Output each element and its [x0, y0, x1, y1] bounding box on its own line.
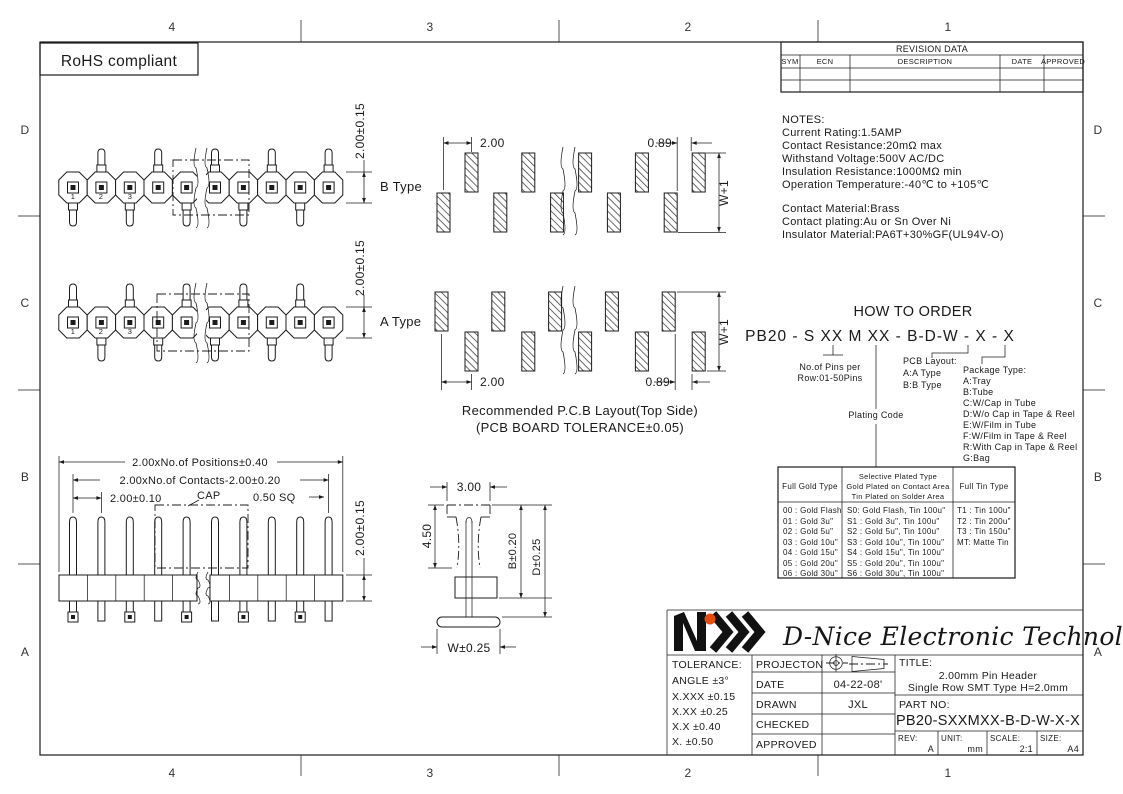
pin-number: 3 — [128, 192, 132, 201]
front-dim-contacts: 2.00xNo.of Contacts-2.00±0.20 — [120, 475, 281, 487]
note-contact-plating: Contact plating:Au or Sn Over Ni — [782, 216, 951, 228]
selective-row: S1 : Gold 3u", Tin 100u" — [847, 517, 940, 526]
row-label-projection: PROJECTON — [756, 659, 823, 671]
grid-label-bottom-4: 4 — [169, 766, 176, 780]
grid-label-left-c: C — [21, 296, 30, 310]
grid-label-left-b: B — [21, 470, 29, 484]
revision-table-title: REVISION DATA — [896, 44, 968, 54]
unit-value: mm — [967, 744, 983, 754]
full-gold-row: 01 : Gold 3u" — [783, 517, 833, 526]
pcb-layout-b: B:B Type — [903, 380, 942, 390]
title-line-1: 2.00mm Pin Header — [939, 670, 1038, 682]
full-gold-row: 04 : Gold 15u" — [783, 548, 838, 557]
tolerance-title: TOLERANCE: — [672, 659, 742, 671]
full-tin-row: T1 : Tin 100u" — [957, 506, 1011, 515]
revision-col-description: DESCRIPTION — [898, 57, 953, 66]
order-part-code: PB20 - S XX M XX - B-D-W - X - X — [745, 328, 1015, 345]
front-dim-positions: 2.00xNo.of Positions±0.40 — [132, 457, 268, 469]
plating-header-selective-1: Selective Plated Type — [859, 472, 937, 481]
tolerance-xx: X.XX ±0.25 — [672, 706, 728, 718]
selective-row: S6 : Gold 30u", Tin 100u" — [847, 569, 944, 578]
pins-per-row-note-2: Row:01-50Pins — [798, 373, 863, 383]
row-label-checked: CHECKED — [756, 719, 810, 731]
tolerance-angle: ANGLE ±3° — [672, 675, 729, 687]
part-no-label: PART NO: — [899, 699, 950, 711]
pins-per-row-note-1: No.of Pins per — [799, 362, 860, 372]
text-layer: 4 3 2 1 4 3 2 1 D C B A D C B A RoHS com… — [21, 20, 1123, 780]
full-tin-row: MT: Matte Tin — [957, 538, 1009, 547]
note-insulation-resistance: Insulation Resistance:1000MΩ min — [782, 166, 962, 178]
pin-number: 2 — [99, 192, 103, 201]
package-type-cap-reel: R:With Cap in Tape & Reel — [963, 442, 1077, 452]
scale-value: 2:1 — [1020, 744, 1033, 754]
grid-label-top-3: 3 — [427, 20, 434, 34]
full-gold-row: 05 : Gold 20u" — [783, 559, 838, 568]
row-label-date: DATE — [756, 679, 784, 691]
company-name: D-Nice Electronic Technology — [782, 622, 1123, 651]
revision-col-date: DATE — [1012, 57, 1033, 66]
datasheet-page: 4 3 2 1 4 3 2 1 D C B A D C B A RoHS com… — [0, 0, 1123, 794]
package-type-cap-tube: C:W/Cap in Tube — [963, 398, 1036, 408]
dim-edge-b: 0.89 — [647, 136, 672, 150]
pin-number: 1 — [71, 192, 75, 201]
grid-label-top-2: 2 — [685, 20, 692, 34]
unit-label: UNIT: — [941, 734, 963, 743]
scale-label: SCALE: — [990, 734, 1020, 743]
note-contact-material: Contact Material:Brass — [782, 203, 900, 215]
full-gold-row: 00 : Gold Flash — [783, 506, 842, 515]
pin-number: 2 — [99, 327, 103, 336]
revision-col-ecn: ECN — [817, 57, 834, 66]
package-type-wo-cap-reel: D:W/o Cap in Tape & Reel — [963, 409, 1075, 419]
line-art — [18, 20, 1105, 776]
dim-edge-a: 0.89 — [645, 375, 670, 389]
full-gold-row: 02 : Gold 5u" — [783, 527, 833, 536]
pin-number: 3 — [128, 327, 132, 336]
grid-label-bottom-1: 1 — [945, 766, 952, 780]
front-dim-height: 2.00±0.15 — [353, 500, 367, 556]
title-label: TITLE: — [899, 657, 932, 669]
package-type-film-tube: E:W/Film in Tube — [963, 420, 1036, 430]
pcb-layout-note-2: (PCB BOARD TOLERANCE±0.05) — [476, 420, 684, 435]
full-tin-row: T3 : Tin 150u" — [957, 527, 1011, 536]
side-dim-width: 3.00 — [457, 480, 482, 494]
dim-w-plus-1-a: W+1 — [717, 319, 731, 345]
grid-label-left-d: D — [21, 123, 30, 137]
full-gold-row: 03 : Gold 10u" — [783, 538, 838, 547]
selective-row: S5 : Gold 20u", Tin 100u" — [847, 559, 944, 568]
rev-label: REV: — [898, 734, 918, 743]
grid-label-left-a: A — [21, 645, 29, 659]
dim-row-height-a: 2.00±0.15 — [353, 240, 367, 296]
plating-header-selective-2: Gold Plated on Contact Area — [846, 482, 950, 491]
selective-row: S0: Gold Flash, Tin 100u" — [847, 506, 945, 515]
tolerance-x: X.X ±0.40 — [672, 721, 721, 733]
selective-row: S4 : Gold 15u", Tin 100u" — [847, 548, 944, 557]
pcb-layout-label: PCB Layout: — [903, 356, 957, 366]
plating-header-full-tin: Full Tin Type — [959, 482, 1008, 491]
package-type-bag: G:Bag — [963, 453, 990, 463]
dim-w-plus-1-b: W+1 — [717, 180, 731, 206]
front-dim-pitch: 2.00±0.10 — [110, 493, 162, 505]
package-type-tray: A:Tray — [963, 376, 991, 386]
row-label-drawn: DRAWN — [756, 699, 797, 711]
revision-col-sym: SYM — [781, 57, 798, 66]
b-type-label: B Type — [380, 179, 422, 194]
plating-header-selective-3: Tin Plated on Solder Area — [852, 492, 945, 501]
side-dim-b: B±0.20 — [507, 533, 519, 570]
rev-value: A — [928, 744, 934, 754]
dim-pitch-b: 2.00 — [480, 136, 505, 150]
row-label-approved: APPROVED — [756, 739, 817, 751]
side-dim-height: 4.50 — [420, 524, 434, 549]
note-operation-temperature: Operation Temperature:-40℃ to +105℃ — [782, 179, 989, 191]
grid-label-right-b: B — [1094, 470, 1102, 484]
selective-row: S3 : Gold 10u", Tin 100u" — [847, 538, 944, 547]
pcb-layout-a: A:A Type — [903, 368, 941, 378]
side-dim-d: D±0.25 — [531, 538, 543, 575]
plating-header-full-gold: Full Gold Type — [782, 482, 838, 491]
package-type-label: Package Type: — [963, 365, 1026, 375]
grid-label-top-1: 1 — [945, 20, 952, 34]
title-line-2: Single Row SMT Type H=2.0mm — [908, 682, 1068, 694]
rohs-badge: RoHS compliant — [61, 53, 178, 70]
dim-row-height-b: 2.00±0.15 — [353, 103, 367, 159]
note-withstand-voltage: Withstand Voltage:500V AC/DC — [782, 153, 945, 165]
grid-label-right-c: C — [1094, 296, 1103, 310]
a-type-label: A Type — [380, 314, 421, 329]
grid-label-top-4: 4 — [169, 20, 176, 34]
grid-label-bottom-3: 3 — [427, 766, 434, 780]
drawn-value: JXL — [848, 699, 868, 711]
front-cap-label: CAP — [197, 490, 221, 502]
pcb-layout-note-1: Recommended P.C.B Layout(Top Side) — [462, 403, 698, 418]
package-type-film-reel: F:W/Film in Tape & Reel — [963, 431, 1067, 441]
grid-label-bottom-2: 2 — [685, 766, 692, 780]
how-to-order-title: HOW TO ORDER — [853, 304, 972, 320]
tolerance-whole: X. ±0.50 — [672, 736, 713, 748]
part-no-value: PB20-SXXMXX-B-D-W-X-X — [896, 713, 1080, 729]
date-value: 04-22-08' — [834, 679, 883, 691]
note-current-rating: Current Rating:1.5AMP — [782, 127, 902, 139]
full-tin-row: T2 : Tin 200u" — [957, 517, 1011, 526]
plating-code-label: Plating Code — [848, 410, 903, 420]
size-value: A4 — [1067, 744, 1079, 754]
dim-pitch-a: 2.00 — [480, 375, 505, 389]
package-type-tube: B:Tube — [963, 387, 993, 397]
selective-row: S2 : Gold 5u", Tin 100u" — [847, 527, 940, 536]
front-dim-square: 0.50 SQ — [253, 492, 296, 504]
full-gold-row: 06 : Gold 30u" — [783, 569, 838, 578]
note-contact-resistance: Contact Resistance:20mΩ max — [782, 140, 942, 152]
size-label: SIZE: — [1040, 734, 1062, 743]
side-dim-w: W±0.25 — [447, 641, 490, 655]
pin-number: 1 — [71, 327, 75, 336]
drawing-canvas: 4 3 2 1 4 3 2 1 D C B A D C B A RoHS com… — [0, 0, 1123, 794]
tolerance-xxx: X.XXX ±0.15 — [672, 691, 735, 703]
notes-title: NOTES: — [782, 114, 825, 126]
revision-col-approved: APPROVED — [1041, 57, 1085, 66]
grid-label-right-d: D — [1094, 123, 1103, 137]
note-insulator-material: Insulator Material:PA6T+30%GF(UL94V-O) — [782, 229, 1004, 241]
